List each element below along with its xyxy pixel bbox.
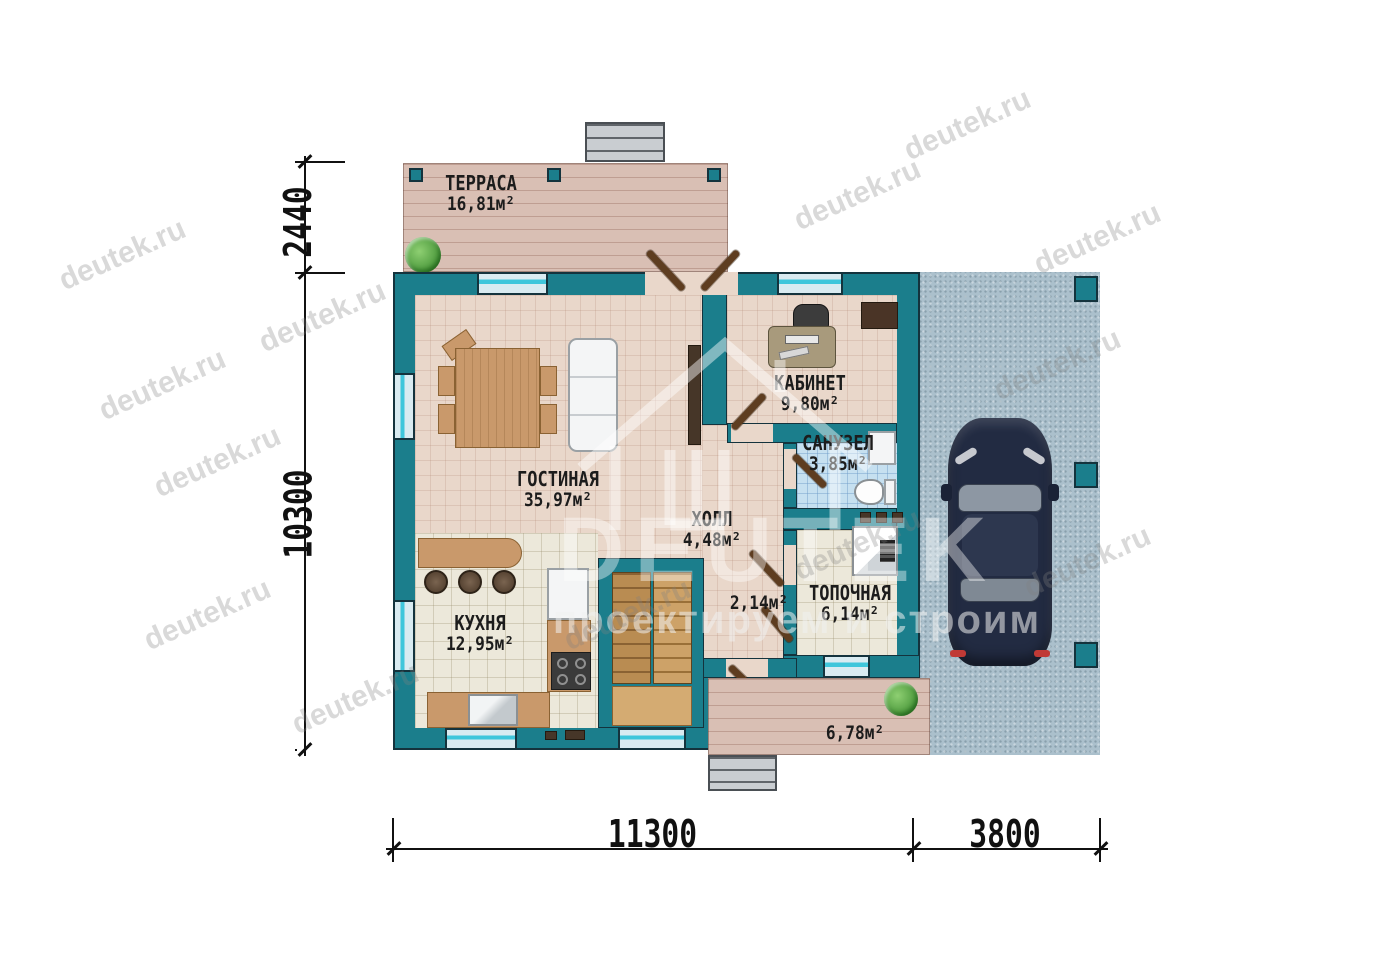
- porch-steps: [708, 755, 777, 791]
- stove: [551, 652, 591, 690]
- watermark-text: deutek.ru: [139, 572, 276, 658]
- room-label-porch: 6,78м²: [804, 723, 906, 744]
- watermark-text: deutek.ru: [94, 342, 231, 428]
- burner: [575, 674, 586, 685]
- dining-chair: [540, 366, 557, 396]
- room-label-kitchen: КУХНЯ 12,95м²: [408, 612, 553, 656]
- window-stairs-south: [618, 728, 686, 750]
- car-taillight: [1034, 650, 1050, 657]
- carport-post: [1074, 462, 1098, 488]
- room-name: КУХНЯ: [408, 612, 553, 634]
- bar-stool: [492, 570, 516, 594]
- terrace-post: [707, 168, 721, 182]
- watermark-text: deutek.ru: [789, 152, 926, 238]
- carport-post: [1074, 276, 1098, 302]
- dim-ext: [295, 749, 297, 751]
- terrace-plant: [405, 237, 441, 273]
- carport-post: [1074, 642, 1098, 668]
- vent: [565, 730, 585, 740]
- dim-house-depth: 10300: [277, 454, 321, 575]
- room-area: 6,78м²: [804, 723, 906, 744]
- dim-ext: [392, 818, 394, 862]
- terrace-steps: [585, 122, 665, 162]
- brand-name: DEUTEK: [558, 498, 996, 603]
- dining-chair: [438, 366, 455, 396]
- car-mirror: [1048, 484, 1059, 501]
- window-living-north: [477, 272, 548, 295]
- bar-stool: [458, 570, 482, 594]
- room-area: 16,81м²: [409, 194, 554, 215]
- floor-plan: ТЕРРАСА 16,81м² ГОСТИНАЯ 35,97м² КАБИНЕТ…: [0, 0, 1400, 975]
- window-office-north: [777, 272, 843, 295]
- dim-ext: [1099, 818, 1101, 862]
- watermark-text: deutek.ru: [899, 82, 1036, 168]
- vent: [545, 731, 557, 740]
- kitchen-bar-counter: [418, 538, 522, 568]
- dining-table: [455, 348, 540, 448]
- room-label-terrace: ТЕРРАСА 16,81м²: [409, 172, 554, 216]
- window-kitchen-south: [445, 728, 517, 750]
- window-boiler-south: [823, 655, 870, 678]
- watermark-text: deutek.ru: [1029, 196, 1166, 282]
- dim-terrace-depth: 2440: [276, 175, 320, 269]
- bar-stool: [424, 570, 448, 594]
- burner: [575, 658, 586, 669]
- stair-landing: [612, 686, 692, 726]
- room-area: 12,95м²: [408, 634, 553, 655]
- dim-house-width: 11300: [588, 812, 717, 856]
- terrace-door-opening: [645, 272, 738, 295]
- dining-chair: [540, 404, 557, 434]
- dim-ext: [912, 818, 914, 862]
- office-cabinet: [861, 302, 898, 329]
- kitchen-sink: [468, 694, 518, 726]
- porch-plant: [884, 682, 918, 716]
- burner: [557, 674, 568, 685]
- watermark-text: deutek.ru: [54, 212, 191, 298]
- watermark-text: deutek.ru: [149, 419, 286, 505]
- window-living-west: [393, 373, 415, 440]
- watermark-text: deutek.ru: [254, 274, 391, 360]
- car-taillight: [950, 650, 966, 657]
- dining-chair: [438, 404, 455, 434]
- dim-carport-width: 3800: [954, 812, 1055, 856]
- room-name: ТЕРРАСА: [409, 172, 554, 194]
- burner: [557, 658, 568, 669]
